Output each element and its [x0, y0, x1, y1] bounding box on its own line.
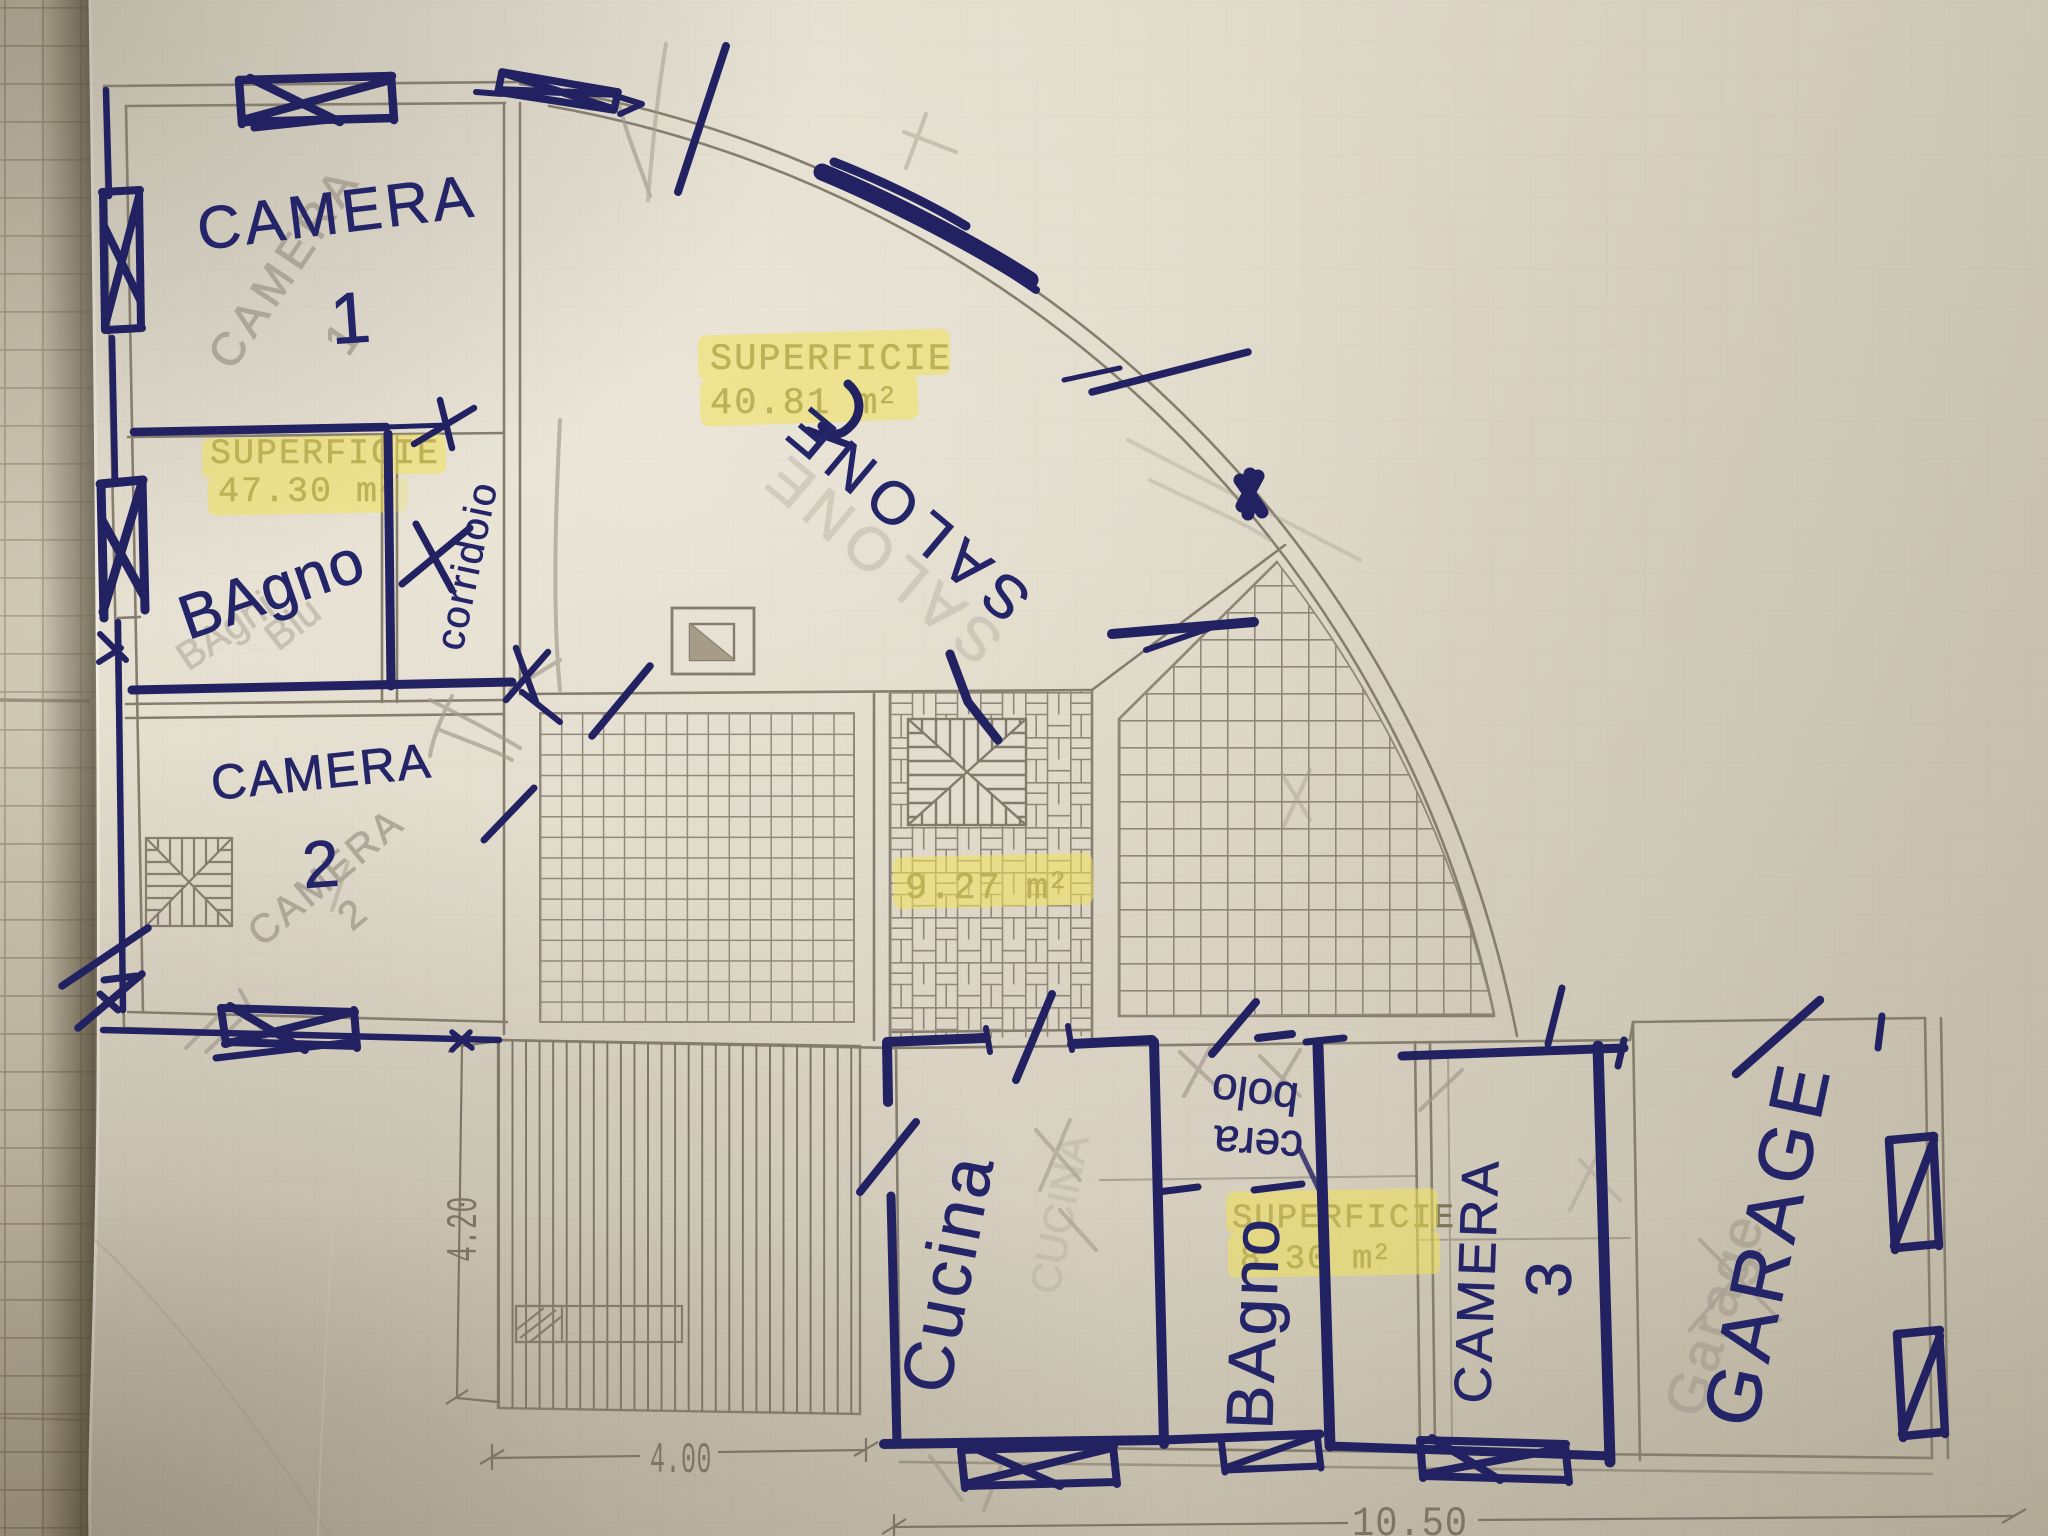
- svg-text:10.50: 10.50: [1352, 1500, 1468, 1536]
- svg-text:3: 3: [1512, 1260, 1585, 1298]
- svg-text:BAgno: BAgno: [1212, 1215, 1293, 1431]
- svg-text:cera: cera: [1211, 1116, 1304, 1174]
- svg-text:1: 1: [328, 277, 374, 360]
- svg-text:2: 2: [300, 826, 342, 902]
- svg-text:4.00: 4.00: [650, 1436, 712, 1486]
- svg-text:4.20: 4.20: [440, 1196, 490, 1262]
- svg-text:CAMERA: CAMERA: [1444, 1156, 1511, 1404]
